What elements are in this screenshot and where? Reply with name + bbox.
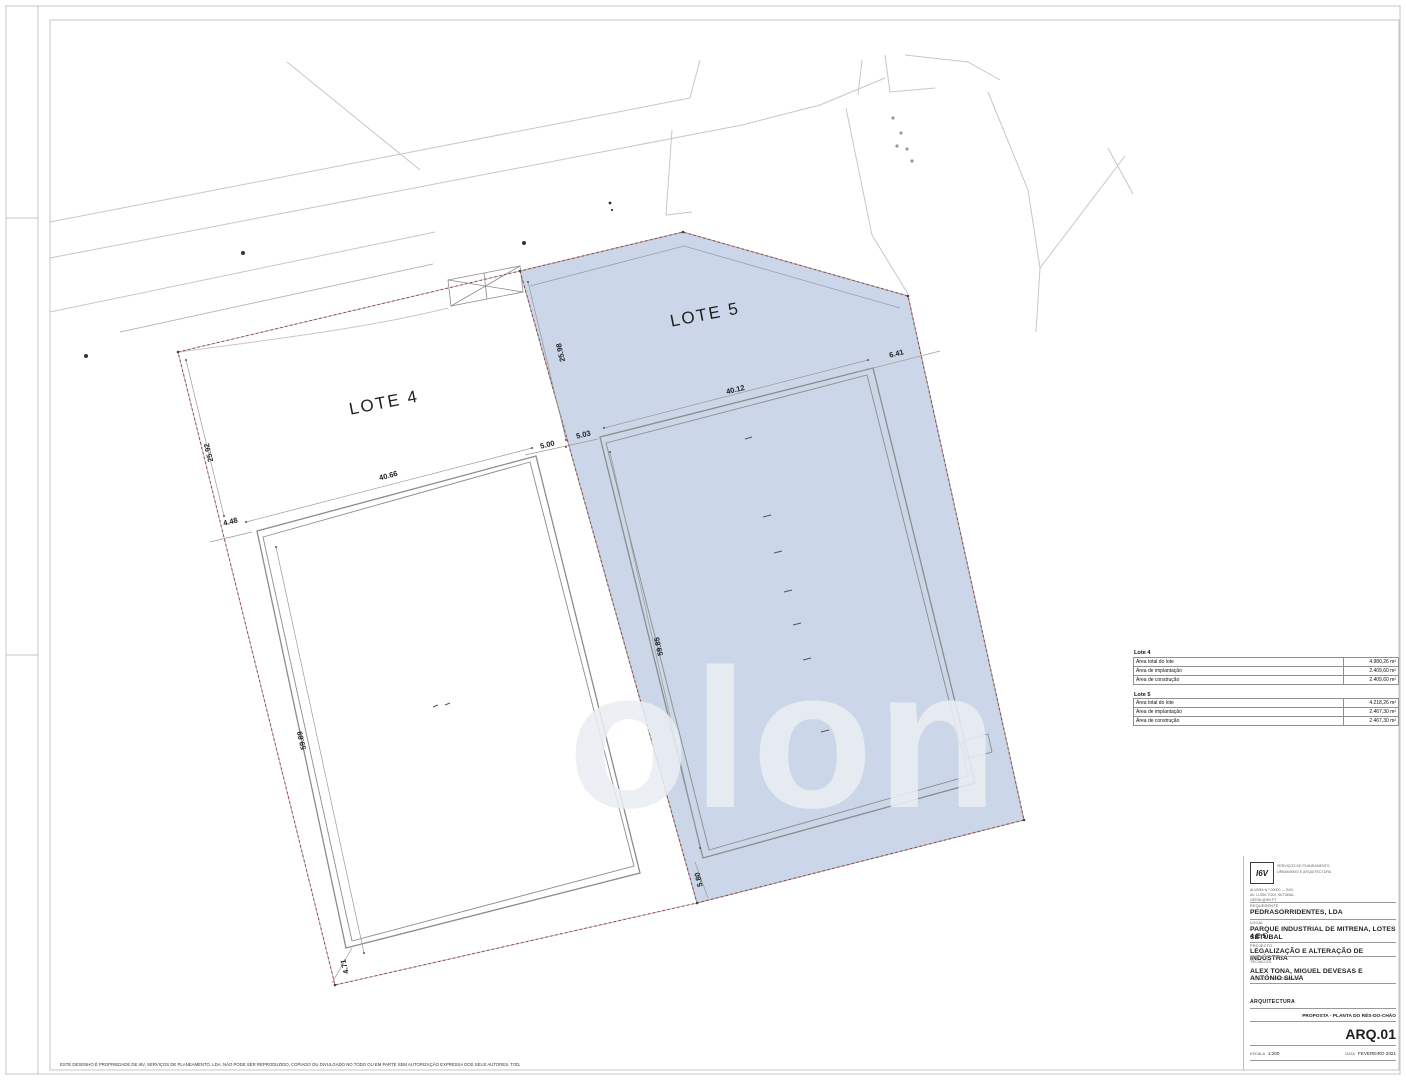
drawing-sheet: LOTE 4 LOTE 5 40.66 59.89 25.92 4.48 4.7… xyxy=(0,0,1406,1080)
area-label: Área de implantação xyxy=(1134,668,1343,674)
title-block: I6V SERVIÇOS DE PLANEAMENTO URBANISMO E … xyxy=(1243,856,1400,1070)
field-label-projecto: PROJECTO xyxy=(1250,944,1396,948)
area-label: Área de implantação xyxy=(1134,709,1343,715)
especialidade-value: ARQUITECTURA xyxy=(1250,999,1396,1005)
field-label-escala: ESCALA xyxy=(1250,1052,1265,1056)
area-value: 2.467,30 m² xyxy=(1343,708,1398,716)
areas-lote4-title: Lote 4 xyxy=(1134,650,1399,656)
company-address: ALVARÁ N.º 00000 — INCI xyxy=(1250,888,1396,892)
dim-lote4-building-width: 40.66 xyxy=(378,469,398,483)
areas-table: Lote 4 Área total do lote 4.980,26 m² Ár… xyxy=(1133,650,1399,726)
tree-marks xyxy=(891,116,913,162)
local-value-line2: SETÚBAL xyxy=(1250,934,1396,941)
company-logo: I6V xyxy=(1250,862,1274,884)
area-value: 2.409,60 m² xyxy=(1343,667,1398,675)
area-label: Área de construção xyxy=(1134,718,1343,724)
scale-date-row: ESCALA1:200 DATAFEVEREIRO 2021 xyxy=(1250,1051,1396,1056)
logo-caption: SERVIÇOS DE PLANEAMENTO xyxy=(1277,864,1396,868)
lote4-interior-marks xyxy=(433,703,450,707)
area-label: Área de construção xyxy=(1134,677,1343,683)
escala-value: 1:200 xyxy=(1268,1051,1280,1056)
company-address: AV. LUÍSA TODI, SETÚBAL xyxy=(1250,893,1396,897)
field-label-tecnicos: TÉCNICOS xyxy=(1250,960,1396,964)
area-label: Área total do lote xyxy=(1134,659,1343,665)
lote4-label: LOTE 4 xyxy=(347,387,420,419)
table-row: Área de construção 2.409,60 m² xyxy=(1133,675,1399,685)
logo-caption: URBANISMO E ARQUITECTURA xyxy=(1277,870,1396,874)
table-row: Área de construção 2.467,30 m² xyxy=(1133,716,1399,726)
requerente-value: PEDRASORRIDENTES, LDA xyxy=(1250,909,1396,916)
area-value: 4.980,26 m² xyxy=(1343,658,1398,666)
dim-lote4-setback-bottom-left: 4.71 xyxy=(338,958,350,974)
field-label-local: LOCAL xyxy=(1250,921,1396,925)
footer-disclaimer: ESTE DESENHO É PROPRIEDADE DE I6V, SERVI… xyxy=(60,1062,520,1067)
dim-lote4-setback-top-left: 4.48 xyxy=(222,515,238,527)
dim-lote4-boundary-top-left: 25.92 xyxy=(202,442,215,462)
sheet-number: ARQ.01 xyxy=(1250,1026,1396,1042)
field-label-requerente: REQUERENTE xyxy=(1250,904,1396,908)
area-label: Área total do lote xyxy=(1134,700,1343,706)
field-label-tecnico-responsavel: TÉCNICO RESPONSÁVEL xyxy=(1250,977,1396,981)
drawing-title: PROPOSTA - PLANTA DO RÉS-DO-CHÃO xyxy=(1250,1014,1396,1019)
lote5-parcel xyxy=(520,232,1024,903)
lote4-building xyxy=(257,456,640,948)
area-value: 4.218,26 m² xyxy=(1343,699,1398,707)
area-value: 2.467,30 m² xyxy=(1343,717,1398,725)
data-value: FEVEREIRO 2021 xyxy=(1358,1051,1396,1056)
areas-lote5-title: Lote 5 xyxy=(1134,692,1399,698)
gate-detail xyxy=(448,266,523,306)
site-plan-svg: LOTE 4 LOTE 5 40.66 59.89 25.92 4.48 4.7… xyxy=(0,0,1406,1080)
field-label-data: DATA xyxy=(1345,1052,1355,1056)
area-value: 2.409,60 m² xyxy=(1343,676,1398,684)
